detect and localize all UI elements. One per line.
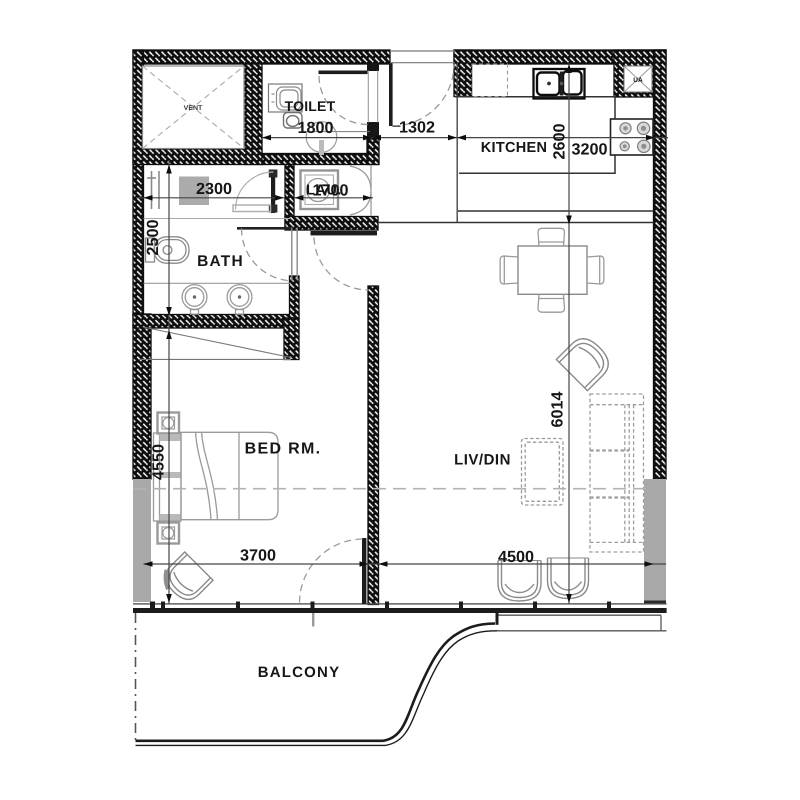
svg-text:1302: 1302 [399, 119, 435, 137]
svg-text:BALCONY: BALCONY [258, 664, 341, 681]
svg-text:KITCHEN: KITCHEN [481, 140, 548, 156]
svg-text:4550: 4550 [150, 444, 168, 480]
svg-text:BED RM.: BED RM. [245, 441, 322, 458]
svg-text:VENT: VENT [184, 105, 203, 112]
svg-text:LIV/DIN: LIV/DIN [454, 452, 511, 469]
svg-text:2500: 2500 [144, 219, 162, 255]
svg-text:2600: 2600 [551, 123, 569, 159]
svg-text:3700: 3700 [240, 547, 276, 565]
svg-text:3200: 3200 [571, 141, 607, 159]
svg-text:1800: 1800 [297, 119, 333, 137]
svg-text:2300: 2300 [196, 180, 232, 198]
svg-text:TOILET: TOILET [285, 98, 336, 114]
svg-text:UA: UA [633, 77, 643, 84]
svg-text:4500: 4500 [498, 548, 534, 566]
svg-text:BATH: BATH [197, 253, 244, 270]
svg-text:6014: 6014 [549, 391, 567, 427]
svg-text:1700: 1700 [312, 182, 348, 200]
